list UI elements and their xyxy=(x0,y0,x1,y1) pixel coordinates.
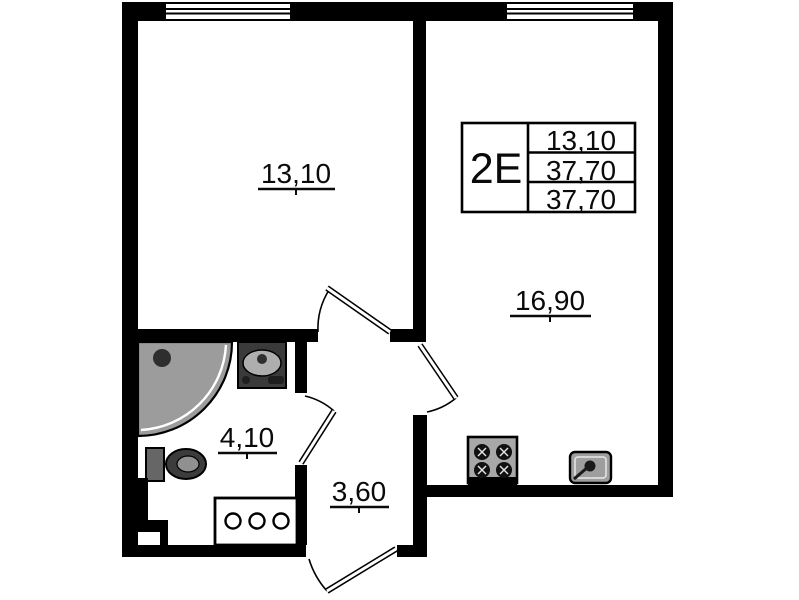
door-kitchen-icon xyxy=(420,345,456,412)
door-leaf-inner xyxy=(301,411,334,463)
cabinet-knob xyxy=(274,514,289,529)
toilet-tank xyxy=(146,448,164,481)
unit-area-row-3: 37,70 xyxy=(546,184,616,215)
window-mullion xyxy=(507,13,633,15)
duct-wall xyxy=(138,478,148,524)
bathroom-area-label: 4,10 xyxy=(218,422,277,459)
hallway-area-value: 3,60 xyxy=(332,476,387,507)
washbasin-icon xyxy=(238,342,286,388)
wall-bedroom-hall-stub xyxy=(390,329,413,342)
kitchen-fixtures xyxy=(468,437,611,485)
wall-bedroom-kitchen xyxy=(413,21,426,342)
washbasin-tap xyxy=(242,376,250,384)
duct-wall xyxy=(160,532,168,545)
shower-tray-icon xyxy=(138,342,232,436)
door-leaf-inner xyxy=(420,345,456,398)
kitchen-area-value: 16,90 xyxy=(515,285,585,316)
window-glass xyxy=(507,4,633,19)
door-leaf-inner xyxy=(327,288,390,332)
kitchen-sink-icon xyxy=(570,452,611,483)
bedroom-area-value: 13,10 xyxy=(261,158,331,189)
toilet-bowl-inner xyxy=(177,456,199,472)
door-bedroom-icon xyxy=(318,288,390,332)
unit-info-box: 2Е 13,10 37,70 37,70 xyxy=(462,123,635,215)
wall-bottom-kitchen xyxy=(413,485,673,497)
door-leaf-inner xyxy=(327,549,396,591)
stove-icon xyxy=(468,437,517,485)
window-glass xyxy=(166,4,290,19)
vent-duct-icon xyxy=(138,478,168,545)
cabinet-icon xyxy=(215,498,297,545)
duct-wall xyxy=(138,520,168,532)
window-icon xyxy=(507,4,633,19)
wall-bottom-left xyxy=(122,545,306,557)
window-mullion xyxy=(166,13,290,15)
stove-body xyxy=(468,437,517,483)
shower-drain xyxy=(153,349,171,367)
wall-left xyxy=(122,2,138,557)
door-arc xyxy=(309,559,327,591)
washbasin-drain xyxy=(257,354,267,364)
shower-outline xyxy=(138,342,232,436)
washbasin-detail xyxy=(268,376,284,384)
wall-hall-kitchen xyxy=(413,415,427,557)
bedroom-area-label: 13,10 xyxy=(258,158,335,195)
floorplan-svg: 13,10 16,90 4,10 3,60 2Е 13,10 37,70 37,… xyxy=(0,0,799,600)
window-mullion xyxy=(166,8,290,10)
wall-bathroom-upper xyxy=(295,342,307,393)
toilet-icon xyxy=(146,448,206,481)
door-arc xyxy=(305,396,334,411)
wall-right xyxy=(658,2,673,497)
wall-bedroom-bathroom xyxy=(138,329,318,342)
bathroom-area-value: 4,10 xyxy=(220,422,275,453)
doors xyxy=(301,288,456,591)
door-arc xyxy=(427,398,456,412)
cabinet-knob xyxy=(226,514,241,529)
door-entrance-icon xyxy=(309,549,396,591)
unit-area-row-2: 37,70 xyxy=(546,155,616,186)
window-icon xyxy=(166,4,290,19)
unit-area-row-1: 13,10 xyxy=(546,125,616,156)
floorplan-canvas: 13,10 16,90 4,10 3,60 2Е 13,10 37,70 37,… xyxy=(0,0,799,600)
stove-base xyxy=(468,477,517,485)
cabinet-knob xyxy=(250,514,265,529)
door-arc xyxy=(318,290,329,332)
door-bathroom-icon xyxy=(301,396,334,463)
kitchen-area-label: 16,90 xyxy=(510,285,591,322)
window-mullion xyxy=(507,8,633,10)
hallway-area-label: 3,60 xyxy=(330,476,389,513)
unit-type-code: 2Е xyxy=(470,145,523,193)
